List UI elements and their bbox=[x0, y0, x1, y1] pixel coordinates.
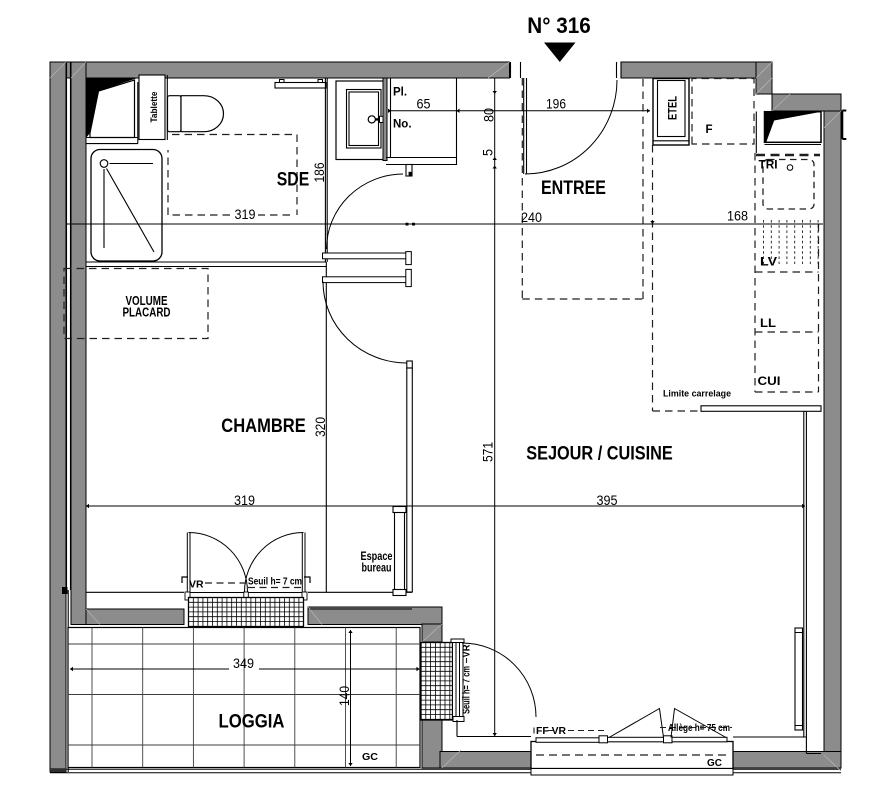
svg-text:GC: GC bbox=[362, 751, 378, 763]
svg-text:Limite carrelage: Limite carrelage bbox=[663, 389, 731, 400]
svg-text:SEJOUR / CUISINE: SEJOUR / CUISINE bbox=[526, 443, 673, 465]
svg-text:CUI: CUI bbox=[758, 376, 781, 388]
svg-text:LV: LV bbox=[760, 257, 777, 269]
svg-text:LOGGIA: LOGGIA bbox=[219, 711, 285, 733]
svg-text:Pl.: Pl. bbox=[393, 87, 407, 99]
svg-text:No.: No. bbox=[393, 119, 412, 131]
svg-text:395: 395 bbox=[597, 492, 618, 508]
svg-text:140: 140 bbox=[336, 686, 352, 706]
svg-text:65: 65 bbox=[417, 96, 431, 112]
svg-text:Tablette: Tablette bbox=[149, 92, 159, 123]
svg-text:319: 319 bbox=[235, 206, 256, 222]
svg-text:Seuil h= 7 cm: Seuil h= 7 cm bbox=[461, 666, 473, 714]
svg-text:320: 320 bbox=[312, 417, 328, 437]
svg-text:Seuil h= 7 cm: Seuil h= 7 cm bbox=[248, 576, 302, 588]
svg-text:ETEL: ETEL bbox=[668, 96, 680, 120]
svg-text:CHAMBRE: CHAMBRE bbox=[221, 415, 306, 437]
svg-text:Espace: Espace bbox=[361, 551, 393, 563]
svg-text:196: 196 bbox=[546, 96, 566, 112]
svg-text:80: 80 bbox=[481, 108, 497, 122]
svg-text:VR: VR bbox=[461, 644, 473, 657]
svg-text:5: 5 bbox=[480, 149, 496, 156]
svg-text:F: F bbox=[706, 124, 713, 136]
svg-text:GC: GC bbox=[707, 757, 722, 769]
svg-text:TRI: TRI bbox=[759, 160, 778, 172]
svg-text:186: 186 bbox=[311, 162, 327, 182]
svg-text:349: 349 bbox=[233, 655, 254, 671]
svg-text:SDE: SDE bbox=[277, 169, 310, 191]
svg-text:LL: LL bbox=[760, 318, 776, 330]
svg-text:bureau: bureau bbox=[362, 563, 392, 575]
svg-text:PLACARD: PLACARD bbox=[123, 306, 171, 320]
svg-text:Allège h= 75 cm: Allège h= 75 cm bbox=[668, 722, 730, 734]
svg-text:VR: VR bbox=[189, 579, 204, 591]
svg-text:168: 168 bbox=[727, 208, 748, 224]
svg-text:240: 240 bbox=[521, 209, 542, 225]
svg-text:319: 319 bbox=[234, 492, 255, 508]
svg-text:ENTREE: ENTREE bbox=[541, 177, 606, 199]
svg-text:N° 316: N° 316 bbox=[527, 13, 591, 38]
svg-text:571: 571 bbox=[480, 442, 496, 462]
